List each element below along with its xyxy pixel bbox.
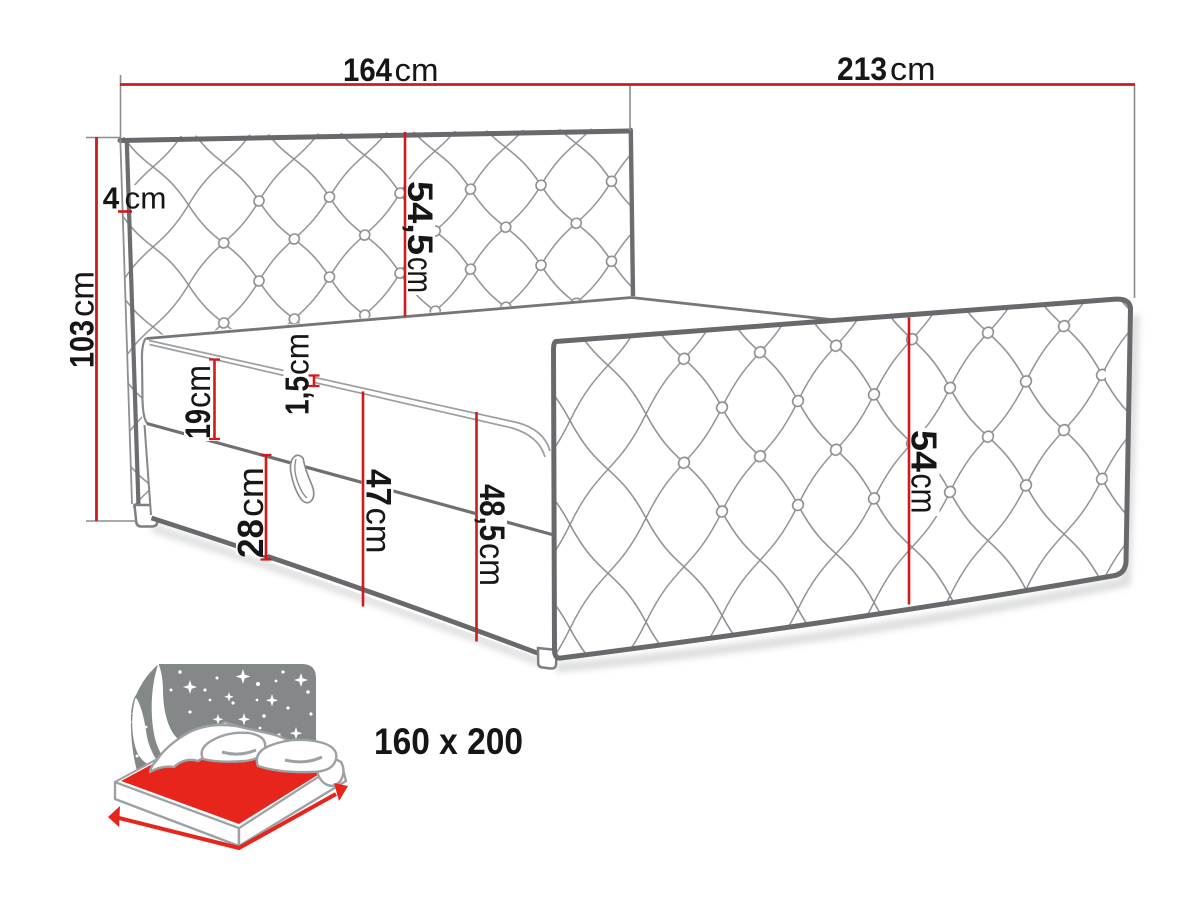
svg-text:19: 19 [179,409,218,439]
svg-text:47: 47 [359,469,398,506]
svg-text:cm: cm [890,51,936,87]
svg-text:cm: cm [64,271,102,317]
svg-text:cm: cm [279,333,316,375]
svg-text:213: 213 [837,51,887,87]
svg-text:cm: cm [472,543,512,586]
svg-text:103: 103 [64,320,102,368]
svg-text:cm: cm [179,365,218,408]
svg-text:164: 164 [343,52,392,88]
svg-text:54: 54 [904,430,945,473]
svg-text:160 x 200: 160 x 200 [374,721,523,762]
svg-text:1,5: 1,5 [279,376,316,415]
svg-text:cm: cm [395,52,439,88]
svg-text:28: 28 [230,519,271,558]
svg-text:cm: cm [359,508,398,554]
svg-text:cm: cm [125,181,167,216]
svg-text:cm: cm [230,467,271,517]
svg-text:cm: cm [400,257,439,293]
svg-text:48,5: 48,5 [472,484,512,541]
svg-text:4: 4 [103,181,120,216]
svg-text:cm: cm [904,474,945,514]
svg-text:54,5: 54,5 [400,181,439,255]
